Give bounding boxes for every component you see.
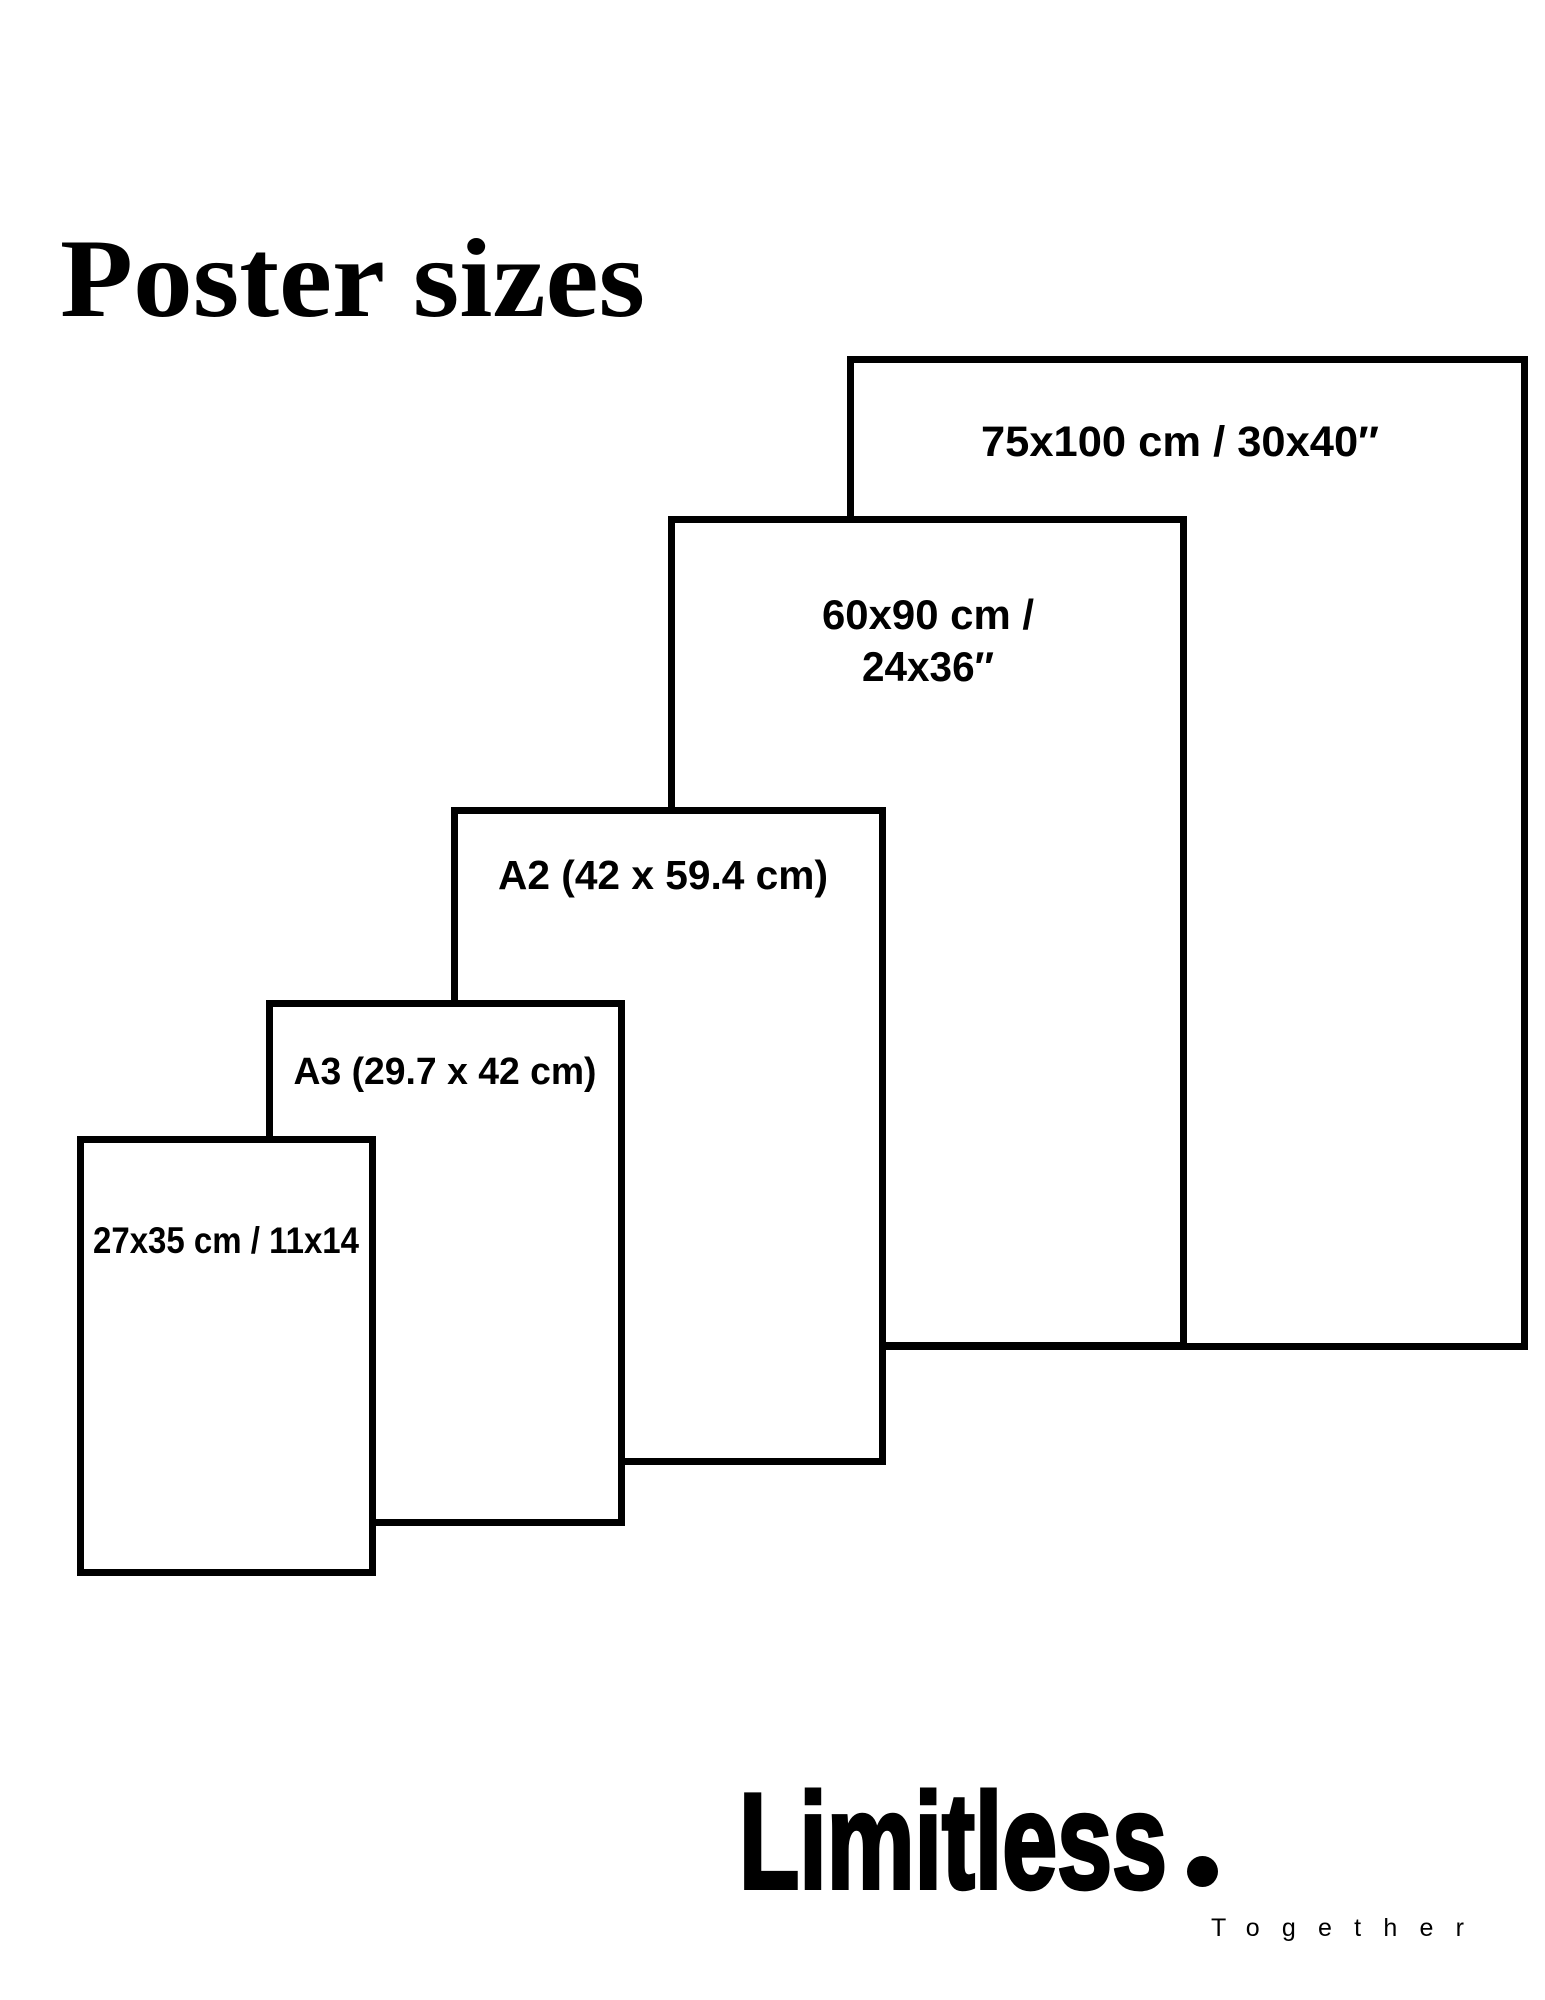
svg-text:Poster sizes: Poster sizes — [60, 217, 645, 341]
svg-text:A3 (29.7 x 42 cm): A3 (29.7 x 42 cm) — [294, 1051, 597, 1093]
svg-text:60x90 cm /: 60x90 cm / — [822, 591, 1034, 638]
svg-text:Limitless: Limitless — [739, 1765, 1167, 1917]
svg-text:27x35 cm / 11x14: 27x35 cm / 11x14 — [93, 1220, 359, 1261]
svg-text:A2 (42 x 59.4 cm): A2 (42 x 59.4 cm) — [498, 852, 828, 898]
svg-text:24x36″: 24x36″ — [862, 643, 994, 690]
svg-text:75x100 cm / 30x40″: 75x100 cm / 30x40″ — [981, 419, 1379, 466]
